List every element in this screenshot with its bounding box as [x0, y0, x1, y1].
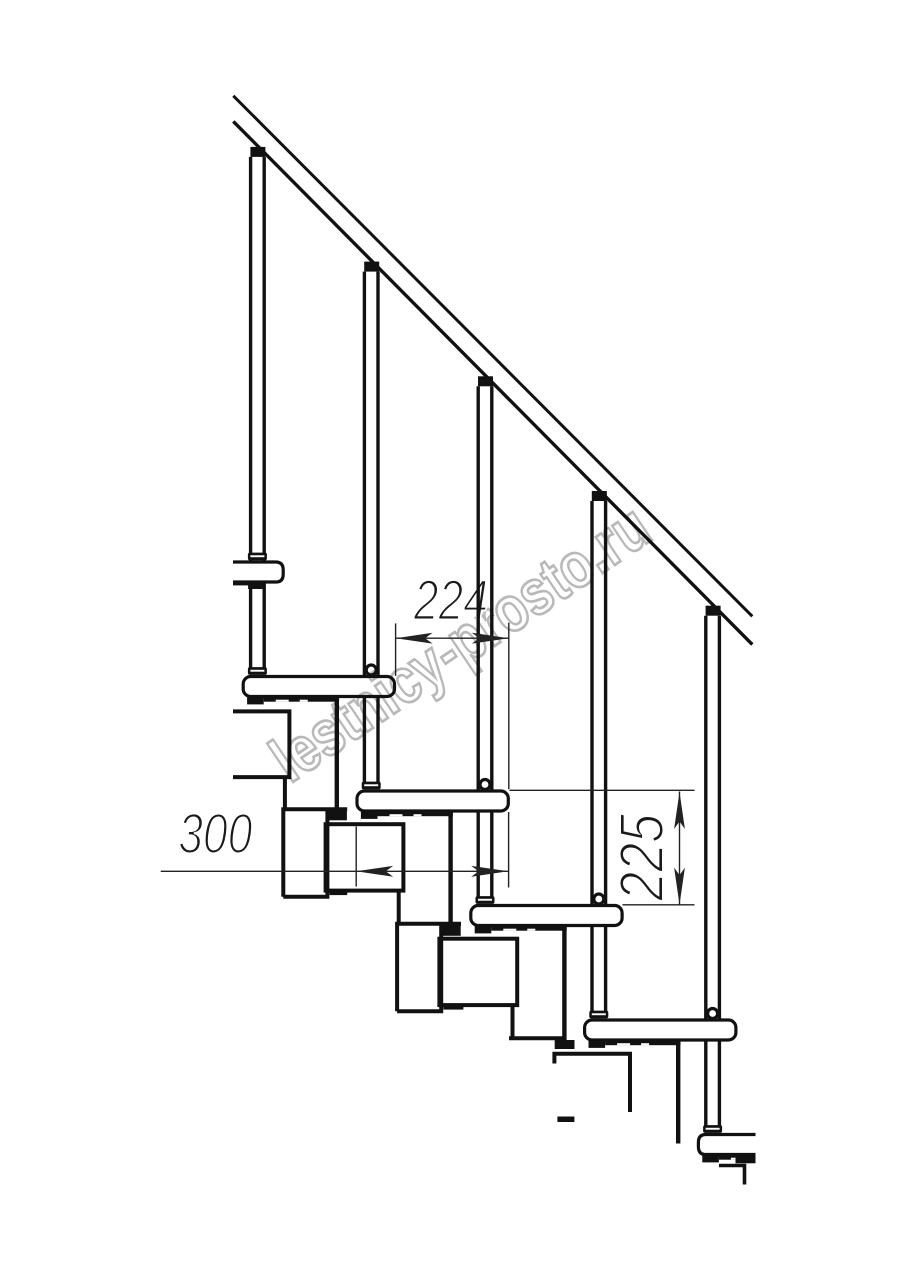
svg-text:300: 300	[178, 802, 252, 866]
svg-text:225: 225	[608, 814, 677, 902]
